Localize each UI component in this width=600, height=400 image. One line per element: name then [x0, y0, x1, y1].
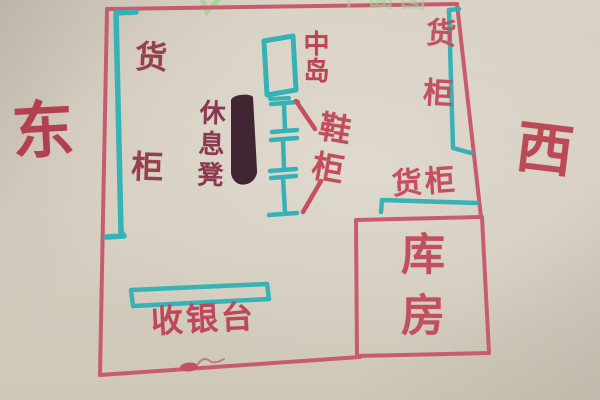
- cashier-label: 收银台: [150, 300, 257, 337]
- slash-upper: [296, 101, 315, 129]
- mid-shelf-label: 货柜: [391, 166, 459, 201]
- bench-shape: [231, 95, 257, 185]
- right-shelf-label: 货柜: [417, 16, 453, 137]
- bottom-wall: [100, 357, 360, 375]
- shoe-rack-unit-2: [270, 138, 297, 171]
- storeroom-label: 库房: [396, 231, 440, 353]
- shoe-rack-unit-1: [271, 102, 298, 132]
- floorplan-title-partial: 平面图: [336, 0, 433, 13]
- rest-bench-label: 休息凳: [194, 99, 223, 193]
- door-squiggle: [198, 359, 224, 364]
- center-island-shape: [264, 36, 296, 99]
- center-island-label: 中岛: [301, 30, 327, 84]
- shoe-rack-unit-3: [269, 176, 297, 215]
- shoe-rack-shape: [269, 102, 298, 215]
- paper-photo: 平面图 东 西 货柜 货柜 货柜 中岛 鞋柜 休息凳 收银台 库房: [0, 0, 600, 400]
- right-wall: [457, 4, 481, 217]
- left-wall: [100, 9, 107, 375]
- left-shelf-label: 货柜: [126, 40, 166, 261]
- center-island-tick: [270, 98, 289, 99]
- west-label: 西: [513, 119, 577, 183]
- center-island-rect: [264, 36, 296, 95]
- east-label: 东: [10, 98, 75, 163]
